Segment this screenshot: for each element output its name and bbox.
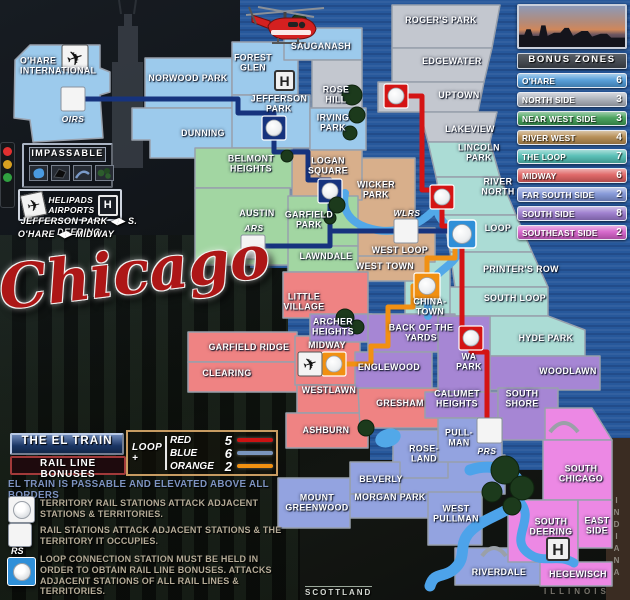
indiana-label: INDIANA (612, 496, 621, 580)
bonus-badge-label: FAR SOUTH SIDE (522, 190, 594, 200)
territory-label-rose-hill[interactable]: ROSE HILL (323, 85, 350, 106)
territory-label-loop[interactable]: LOOP (485, 223, 512, 233)
territory-label-hyde-park[interactable]: HYDE PARK (519, 333, 574, 343)
station-loop-connection[interactable] (448, 220, 476, 248)
svg-text:H: H (552, 542, 564, 559)
south-deering-helipad-icon: H (547, 538, 569, 560)
rail-station-icon (8, 523, 32, 547)
traffic-light-yellow (3, 160, 12, 169)
el-train-title: THE EL TRAIN (10, 433, 124, 455)
forest-glen-helipad-icon: H (275, 71, 294, 90)
bonus-badge-label: THE LOOP (522, 152, 566, 162)
airplane-icon: ✈ (20, 191, 48, 219)
territory-label-dunning[interactable]: DUNNING (181, 128, 225, 138)
territory-shape-rogers-park[interactable] (392, 5, 500, 48)
territory-label-logan-square[interactable]: LOGAN SQUARE (308, 156, 348, 177)
territory-label-south-deering[interactable]: SOUTH DEERING (530, 517, 573, 538)
game-map-screen: ✈ ✈ H H (0, 0, 630, 600)
blue-line-label: BLUE (170, 448, 218, 459)
territory-label-calumet-heights[interactable]: CALUMET HEIGHTS (434, 389, 480, 410)
traffic-light-image (0, 142, 15, 208)
territory-label-back-of-the-yards[interactable]: BACK OF THE YARDS (389, 323, 454, 344)
territory-label-belmont-heights[interactable]: BELMONT HEIGHTS (228, 154, 274, 175)
bonus-zones-header: BONUS ZONES (517, 53, 627, 69)
territory-label-roseland[interactable]: ROSE- LAND (409, 444, 439, 465)
territory-label-printers-row[interactable]: PRINTER'S ROW (483, 264, 559, 274)
shortcut-ohare-midway: O'HARE ◀▶ MIDWAY (10, 229, 122, 240)
station-jefferson-park-blue[interactable] (262, 116, 286, 140)
territory-label-west-town[interactable]: WEST TOWN (356, 261, 414, 271)
territory-label-west-loop[interactable]: WEST LOOP (372, 245, 428, 255)
bonus-badge-label: O'HARE (522, 76, 555, 86)
territory-label-west-pullman[interactable]: WEST PULLMAN (433, 504, 479, 525)
territory-label-clearing[interactable]: CLEARING (202, 368, 251, 378)
bonus-badge-river-west: RIVER WEST4 (517, 130, 627, 145)
station-midway-orange[interactable] (322, 352, 346, 376)
territory-label-morgan-park[interactable]: MORGAN PARK (354, 492, 425, 502)
blue-line-swatch (237, 451, 273, 455)
rule-loop-connection-station: LOOP CONNECTION STATION MUST BE HELD IN … (40, 554, 288, 597)
bonus-zones-panel: BONUS ZONES O'HARE6 NORTH SIDE3 NEAR WES… (517, 4, 627, 240)
territory-label-lincoln-park[interactable]: LINCOLN PARK (458, 143, 500, 164)
bonus-badge-far-south-side: FAR SOUTH SIDE2 (517, 187, 627, 202)
territory-label-beverly[interactable]: BEVERLY (359, 474, 403, 484)
helipads-label: HELIPADS (48, 195, 94, 205)
bonus-badge-label: SOUTHEAST SIDE (522, 228, 598, 238)
territory-label-little-village[interactable]: LITTLE VILLAGE (284, 292, 325, 313)
airports-label: AIRPORTS (48, 205, 94, 215)
territory-label-chinatown[interactable]: CHINA- TOWN (413, 297, 446, 318)
bonus-badge-label: MIDWAY (522, 171, 557, 181)
territory-label-south-chicago[interactable]: SOUTH CHICAGO (559, 464, 603, 485)
territory-label-ashburn[interactable]: ASHBURN (303, 425, 350, 435)
watermark: SCOTTLAND (305, 586, 372, 597)
territory-label-sauganash[interactable]: SAUGANASH (291, 41, 351, 51)
territory-label-east-side[interactable]: EAST SIDE (584, 516, 609, 537)
territory-label-riverdale[interactable]: RIVERDALE (472, 567, 526, 577)
loop-bonus-panel: LOOP + RED 5 BLUE 6 ORANGE 2 (126, 430, 278, 476)
skyline-silhouette (519, 22, 625, 47)
territory-label-south-shore[interactable]: SOUTH SHORE (505, 389, 538, 410)
orange-line-label: ORANGE (170, 461, 218, 472)
bonus-badge-midway: MIDWAY6 (517, 168, 627, 183)
station-washington-park-red[interactable] (459, 326, 483, 350)
traffic-light-red (3, 147, 12, 156)
bonus-badge-southeast-side: SOUTHEAST SIDE2 (517, 225, 627, 240)
territory-label-archer-heights[interactable]: ARCHER HEIGHTS (312, 317, 354, 338)
territory-label-irving-park[interactable]: IRVING PARK (317, 113, 350, 134)
territory-label-forest-glen[interactable]: FOREST GLEN (234, 53, 272, 74)
station-circle-glyph (13, 563, 31, 581)
bonus-badge-label: SOUTH SIDE (522, 209, 575, 219)
bonus-badge-value: 6 (616, 170, 622, 181)
illinois-label: ILLINOIS (544, 587, 610, 596)
territory-label-river-north[interactable]: RIVER NORTH (481, 177, 514, 198)
bonus-badge-value: 2 (616, 189, 622, 200)
station-prs[interactable] (477, 418, 502, 443)
station-label-wlrs: WLRS (393, 208, 420, 218)
rs-label: RS (11, 546, 24, 556)
water-icon (29, 165, 48, 181)
rule-rail-stations: RAIL STATIONS ATTACK ADJACENT STATIONS &… (40, 525, 288, 547)
territory-label-lakeview[interactable]: LAKEVIEW (445, 124, 495, 134)
bonus-badge-label: NORTH SIDE (522, 95, 575, 105)
bonus-badge-label: NEAR WEST SIDE (522, 114, 596, 124)
impassable-legend: IMPASSABLE (22, 143, 113, 188)
station-label-oirs: OIRS (62, 114, 85, 124)
station-chinatown-orange[interactable] (414, 273, 440, 299)
helipads-airports-label: HELIPADS AIRPORTS (48, 195, 94, 215)
bonus-badge-value: 6 (616, 75, 622, 86)
territory-label-garfield-park[interactable]: GARFIELD PARK (285, 210, 333, 231)
red-line-label: RED (170, 435, 218, 446)
territory-label-woodlawn[interactable]: WOODLAWN (539, 366, 596, 376)
skyline-photo (517, 4, 627, 49)
midway-airplane-icon: ✈ (298, 352, 322, 377)
svg-text:H: H (279, 73, 289, 89)
territory-label-englewood[interactable]: ENGLEWOOD (358, 362, 420, 372)
territory-label-gresham[interactable]: GRESHAM (376, 398, 424, 408)
rule-territory-rail-stations: TERRITORY RAIL STATIONS ATTACK ADJACENT … (40, 498, 288, 520)
station-river-north-red[interactable] (430, 185, 454, 209)
bonus-badge-the-loop: THE LOOP7 (517, 149, 627, 164)
territory-label-edgewater[interactable]: EDGEWATER (422, 56, 482, 66)
territory-label-austin[interactable]: AUSTIN (239, 208, 274, 218)
bonus-badge-near-west-side: NEAR WEST SIDE3 (517, 111, 627, 126)
orange-line-row: ORANGE 2 (170, 460, 273, 473)
sears-tower-silhouette (112, 0, 143, 168)
loop-connection-station-icon (7, 557, 36, 586)
airfield-icon (51, 165, 70, 181)
territory-label-ohare-international[interactable]: O'HARE INTERNATIONAL (20, 56, 96, 77)
station-wlrs[interactable] (394, 219, 418, 243)
station-label-prs: PRS (478, 446, 497, 456)
bonus-badge-ohare: O'HARE6 (517, 73, 627, 88)
station-circle-glyph (13, 501, 31, 519)
bonus-badge-value: 4 (616, 132, 622, 143)
forest-icon (95, 165, 114, 181)
bonus-badge-value: 7 (616, 151, 622, 162)
territory-label-pullman[interactable]: PULL- MAN (445, 428, 473, 449)
territory-label-midway[interactable]: MIDWAY (308, 340, 346, 350)
bonus-badge-label: RIVER WEST (522, 133, 576, 143)
bonus-badge-value: 3 (616, 94, 622, 105)
bonus-badge-south-side: SOUTH SIDE8 (517, 206, 627, 221)
traffic-light-green (3, 173, 12, 182)
bonus-badge-value: 2 (616, 227, 622, 238)
bracket-glyph (165, 436, 167, 470)
territory-label-washington-park[interactable]: WA PARK (456, 352, 482, 373)
impassable-icons (24, 162, 111, 181)
bonus-badge-value: 8 (616, 208, 622, 219)
bonus-badge-value: 3 (616, 113, 622, 124)
territory-label-norwood-park[interactable]: NORWOOD PARK (148, 73, 227, 83)
station-uptown-red[interactable] (384, 84, 408, 108)
territory-rail-station-icon (8, 496, 35, 523)
territory-label-wicker-park[interactable]: WICKER PARK (357, 180, 395, 201)
territory-label-south-loop[interactable]: SOUTH LOOP (484, 293, 546, 303)
territory-label-jefferson-park[interactable]: JEFFERSON PARK (251, 94, 307, 115)
loop-plus-label: LOOP + (132, 442, 162, 464)
station-oirs[interactable] (61, 87, 85, 111)
red-line-swatch (237, 438, 273, 442)
bonus-badge-north-side: NORTH SIDE3 (517, 92, 627, 107)
orange-line-swatch (237, 464, 273, 468)
orange-line-bonus: 2 (218, 459, 232, 474)
ramp-icon (73, 165, 92, 181)
territory-label-westlawn[interactable]: WESTLAWN (302, 385, 357, 395)
territory-label-rogers-park[interactable]: ROGER'S PARK (405, 15, 477, 25)
helipad-icon: H (98, 195, 118, 216)
territory-label-hegewisch[interactable]: HEGEWISCH (549, 569, 607, 579)
territory-label-uptown[interactable]: UPTOWN (438, 90, 479, 100)
rail-line-bonuses-title: RAIL LINE BONUSES (10, 456, 126, 475)
impassable-title: IMPASSABLE (29, 147, 106, 162)
territory-label-lawndale[interactable]: LAWNDALE (299, 251, 352, 261)
